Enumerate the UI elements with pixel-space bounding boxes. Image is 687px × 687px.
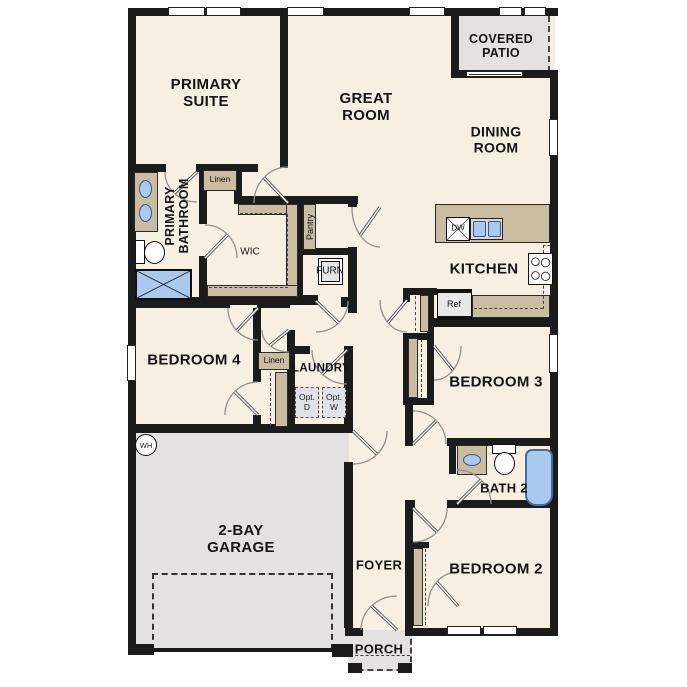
primary-vanity bbox=[134, 172, 158, 232]
room-label-bath2: BATH 2 bbox=[480, 482, 528, 497]
room-label-laundry: LAUNDRY bbox=[292, 363, 350, 376]
room-label-dining-room: DINING ROOM bbox=[458, 124, 534, 155]
window bbox=[483, 626, 517, 635]
bedroom2-closet-shelf bbox=[413, 548, 423, 626]
room-label-porch: PORCH bbox=[355, 643, 403, 658]
label-linen-hall: Linen bbox=[264, 356, 285, 366]
porch-post bbox=[348, 663, 362, 673]
sink-basin bbox=[488, 221, 501, 237]
wall bbox=[405, 405, 413, 446]
closet-rod-line bbox=[425, 549, 426, 625]
wall bbox=[257, 300, 290, 308]
sliding-door bbox=[466, 71, 523, 77]
burners-icon bbox=[529, 254, 552, 284]
closet-rod-line bbox=[270, 373, 271, 426]
kitchen-sink bbox=[470, 218, 503, 240]
wall bbox=[234, 196, 358, 204]
wall bbox=[449, 438, 456, 474]
vanity-sink bbox=[463, 454, 481, 466]
coat-closet-shelf bbox=[420, 295, 429, 332]
water-heater-icon: WH bbox=[135, 434, 157, 456]
room-label-great-room: GREAT ROOM bbox=[326, 91, 406, 125]
bedroom2-door bbox=[413, 508, 447, 542]
furnace-door bbox=[316, 301, 348, 332]
closet-rod-line bbox=[421, 339, 422, 397]
wall bbox=[128, 424, 353, 433]
wic-door bbox=[205, 225, 237, 258]
room-label-bedroom3: BEDROOM 3 bbox=[449, 375, 543, 392]
label-pantry: Pantry bbox=[305, 214, 315, 240]
label-ref: Ref bbox=[447, 299, 461, 309]
wall bbox=[136, 164, 166, 172]
window bbox=[206, 7, 241, 16]
bedroom4-closet-shelf bbox=[275, 372, 288, 427]
bedroom4-door bbox=[228, 308, 258, 340]
bedroom3-door bbox=[413, 411, 446, 444]
wall bbox=[451, 10, 459, 78]
coat-closet-door bbox=[380, 300, 407, 332]
wall bbox=[405, 500, 413, 628]
shower-x-icon bbox=[137, 271, 190, 298]
optional-dryer: Opt. D bbox=[295, 387, 319, 418]
floor-plan: WH Opt. D Opt. W PRIMARY SUITE GREAT ROO… bbox=[0, 0, 687, 687]
linen-door bbox=[262, 330, 289, 352]
window bbox=[549, 119, 558, 156]
window bbox=[409, 7, 445, 16]
pantry-door bbox=[352, 207, 380, 247]
cabinet-line bbox=[543, 245, 550, 246]
toilet-bowl bbox=[144, 241, 165, 264]
garage-entry-door bbox=[353, 431, 387, 464]
window bbox=[447, 626, 481, 635]
closet-rod-line bbox=[415, 296, 416, 331]
room-label-primary-bathroom: PRIMARY BATHROOM bbox=[163, 167, 191, 265]
stove bbox=[528, 253, 553, 285]
slider-track bbox=[469, 74, 521, 75]
optional-washer: Opt. W bbox=[322, 387, 346, 418]
window bbox=[524, 7, 546, 16]
wall bbox=[152, 648, 334, 652]
wall bbox=[280, 8, 288, 168]
wall bbox=[296, 295, 318, 305]
sink-basin bbox=[473, 221, 486, 237]
wall bbox=[128, 8, 136, 653]
bathtub bbox=[525, 449, 553, 506]
cabinet-line bbox=[474, 308, 543, 309]
room-label-bedroom2: BEDROOM 2 bbox=[449, 562, 543, 579]
garage-door-outline bbox=[152, 573, 333, 650]
toilet-bowl bbox=[494, 452, 515, 475]
wic-shelf-line bbox=[240, 213, 287, 214]
bedroom3-closet-shelf bbox=[408, 338, 418, 398]
label-linen: Linen bbox=[210, 175, 231, 185]
bedroom4-closet-door bbox=[225, 382, 258, 415]
wall bbox=[332, 644, 353, 657]
window bbox=[549, 334, 558, 373]
wall bbox=[405, 628, 558, 636]
wall bbox=[287, 346, 310, 354]
label-dw: DW bbox=[451, 225, 464, 234]
wall bbox=[128, 644, 154, 655]
primary-suite-door bbox=[254, 167, 288, 203]
room-label-bedroom4: BEDROOM 4 bbox=[147, 353, 241, 370]
room-label-wic: WIC bbox=[240, 246, 259, 257]
wall bbox=[344, 462, 353, 628]
window bbox=[127, 345, 136, 381]
room-label-garage: 2-BAY GARAGE bbox=[195, 523, 287, 557]
label-furn: FURN bbox=[316, 265, 344, 276]
window bbox=[499, 7, 522, 16]
wic-shelf-line bbox=[287, 214, 288, 286]
room-label-covered-patio: COVERED PATIO bbox=[460, 32, 542, 60]
wall bbox=[348, 196, 357, 207]
front-door bbox=[361, 596, 397, 630]
kitchen-counter bbox=[472, 295, 550, 318]
vanity-sink bbox=[139, 180, 152, 198]
room-label-foyer: FOYER bbox=[356, 559, 402, 574]
porch-post bbox=[398, 663, 412, 673]
window bbox=[287, 7, 324, 16]
room-label-kitchen: KITCHEN bbox=[450, 262, 519, 279]
wic-shelf-line bbox=[209, 287, 288, 288]
room-label-primary-suite: PRIMARY SUITE bbox=[150, 77, 262, 111]
shower bbox=[135, 269, 192, 300]
wall bbox=[403, 398, 434, 405]
window bbox=[168, 7, 205, 16]
vanity-sink bbox=[139, 204, 152, 222]
